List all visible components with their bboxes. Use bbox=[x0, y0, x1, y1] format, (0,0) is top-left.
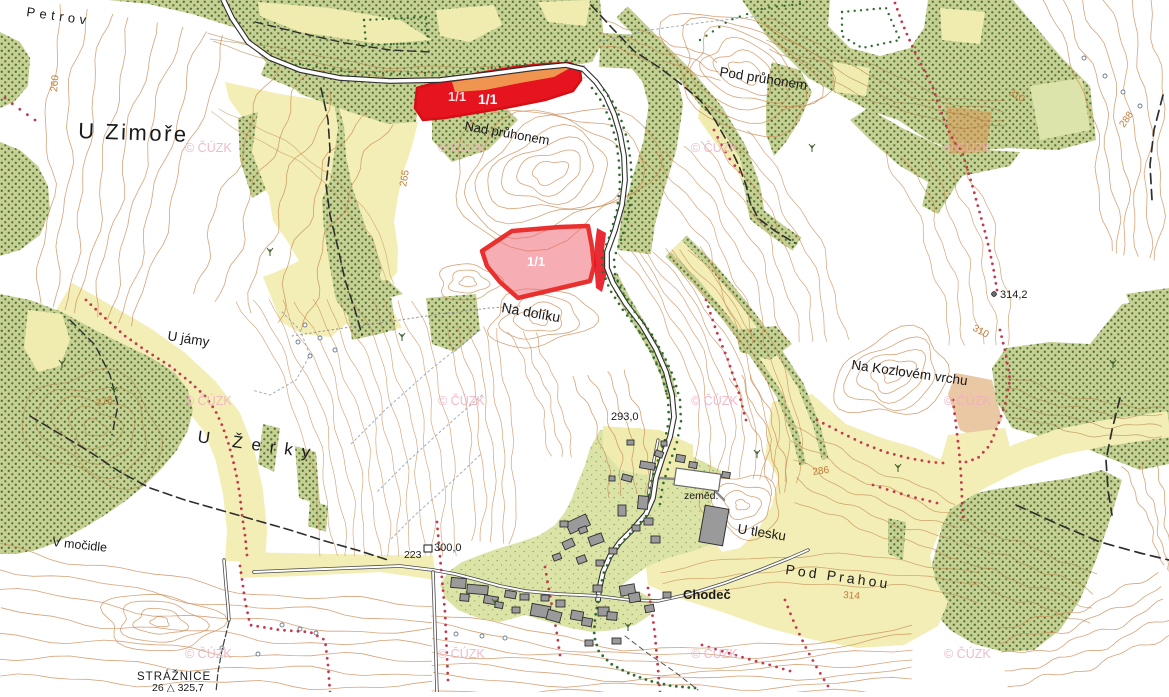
svg-text:© ČÚZK: © ČÚZK bbox=[691, 646, 738, 661]
svg-text:© ČÚZK: © ČÚZK bbox=[185, 646, 232, 661]
svg-text:260: 260 bbox=[49, 74, 61, 92]
svg-text:314,2: 314,2 bbox=[1000, 289, 1028, 301]
svg-text:314: 314 bbox=[843, 590, 861, 602]
svg-text:© ČÚZK: © ČÚZK bbox=[691, 393, 738, 408]
svg-text:Chodeč: Chodeč bbox=[683, 587, 731, 602]
svg-text:© ČÚZK: © ČÚZK bbox=[944, 140, 991, 155]
svg-text:1/1: 1/1 bbox=[448, 89, 466, 104]
svg-text:223: 223 bbox=[404, 549, 422, 561]
svg-text:© ČÚZK: © ČÚZK bbox=[691, 140, 738, 155]
svg-text:293,0: 293,0 bbox=[611, 411, 639, 423]
svg-text:© ČÚZK: © ČÚZK bbox=[185, 140, 232, 155]
svg-text:1/1: 1/1 bbox=[478, 91, 498, 107]
svg-text:zeměd.: zeměd. bbox=[684, 490, 718, 502]
svg-text:U Zimoře: U Zimoře bbox=[78, 118, 189, 147]
svg-text:© ČÚZK: © ČÚZK bbox=[944, 393, 991, 408]
svg-text:1/1: 1/1 bbox=[527, 254, 545, 269]
svg-text:© ČÚZK: © ČÚZK bbox=[438, 393, 485, 408]
svg-text:© ČÚZK: © ČÚZK bbox=[185, 393, 232, 408]
svg-text:© ČÚZK: © ČÚZK bbox=[438, 646, 485, 661]
svg-text:© ČÚZK: © ČÚZK bbox=[438, 140, 485, 155]
svg-text:© ČÚZK: © ČÚZK bbox=[944, 646, 991, 661]
svg-text:300,0: 300,0 bbox=[434, 542, 462, 554]
svg-text:26 △ 325,7: 26 △ 325,7 bbox=[152, 682, 204, 692]
